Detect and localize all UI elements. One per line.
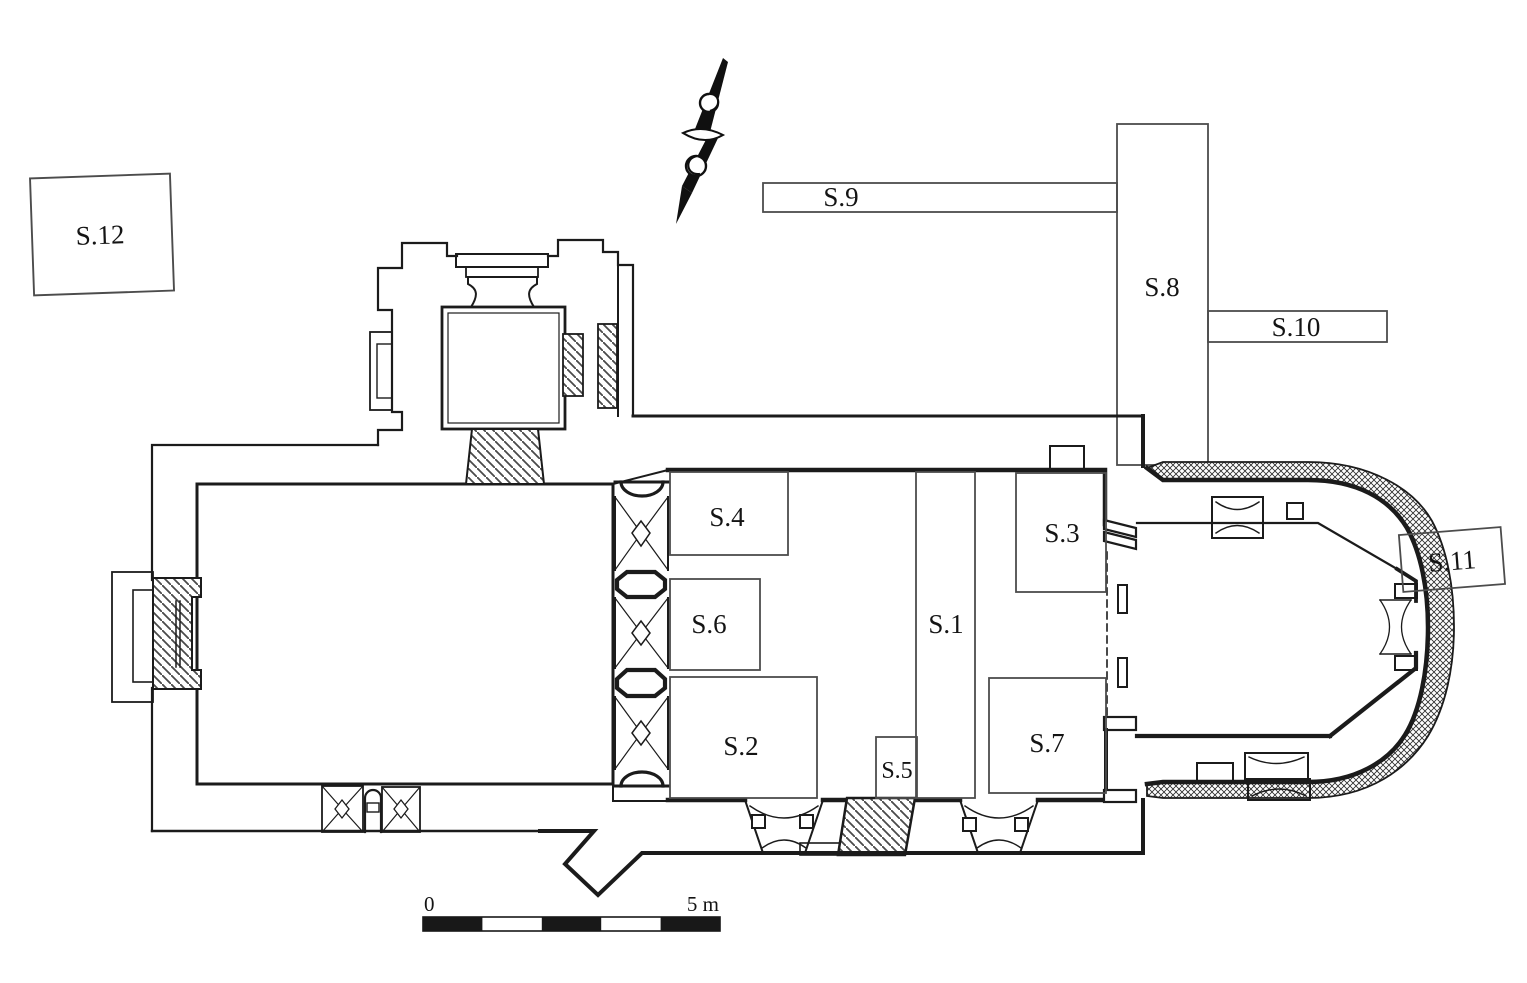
- scale-zero-label: 0: [424, 892, 435, 916]
- scale-end-label: 5 m: [687, 892, 719, 916]
- trench-s9-box: [763, 183, 1117, 212]
- trench-s1-label: S.1: [928, 609, 963, 639]
- chancel-interior: [1118, 497, 1417, 800]
- column-base-octagon-2: [617, 670, 665, 696]
- pier-symbol-1: [615, 497, 668, 570]
- scale-bar: 0 5 m: [423, 892, 720, 931]
- plan-canvas: S.1 S.2 S.3 S.4 S.5 S.6 S.7 S.8 S.9 S.10…: [0, 0, 1527, 983]
- interior-trench-boxes: [670, 472, 1505, 798]
- trench-s10-label: S.10: [1272, 312, 1321, 342]
- trench-s4-label: S.4: [709, 502, 745, 532]
- southwest-chapel-piers: [322, 786, 420, 832]
- north-arrow-icon: [676, 58, 728, 224]
- floor-plan-figure: S.1 S.2 S.3 S.4 S.5 S.6 S.7 S.8 S.9 S.10…: [0, 0, 1527, 983]
- scale-segment-1: [423, 917, 482, 931]
- north-tower: [370, 240, 633, 484]
- pier-symbol-2: [615, 598, 668, 668]
- apse-wall: [1147, 462, 1454, 798]
- east-window: [1380, 584, 1417, 670]
- altar-column-north: [1212, 497, 1263, 538]
- pier-symbol-3: [615, 697, 668, 769]
- trench-s2-label: S.2: [723, 731, 758, 761]
- trench-s5-label: S.5: [881, 758, 912, 784]
- south-window-1: [745, 800, 823, 853]
- trench-s6-label: S.6: [691, 609, 726, 639]
- trench-s3-label: S.3: [1044, 518, 1079, 548]
- scale-segment-5: [661, 917, 720, 931]
- column-base-octagon-1: [617, 572, 665, 597]
- trench-s7-label: S.7: [1029, 728, 1064, 758]
- trench-s9-label: S.9: [823, 182, 858, 212]
- scale-segment-3: [542, 917, 601, 931]
- colonnade: [613, 470, 668, 801]
- west-portal: [112, 572, 201, 702]
- church-plan: [112, 240, 1454, 895]
- south-window-2: [960, 800, 1038, 853]
- trench-s11-label: S.11: [1427, 544, 1477, 578]
- trench-s8-label: S.8: [1144, 272, 1179, 302]
- trench-s12-label: S.12: [75, 219, 125, 251]
- west-block-walls: [152, 445, 613, 831]
